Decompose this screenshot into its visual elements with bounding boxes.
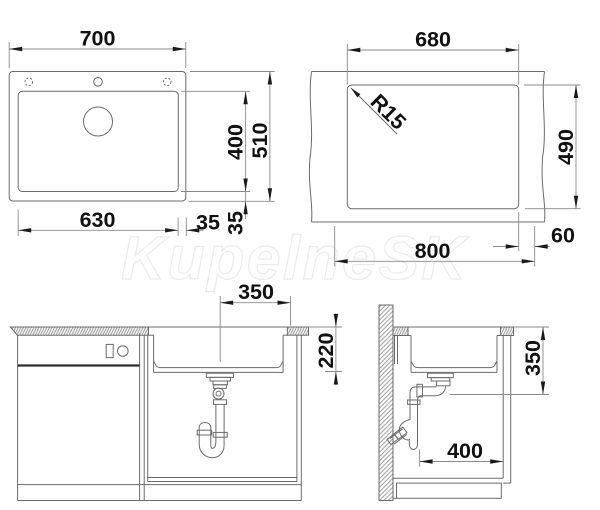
svg-text:R15: R15 <box>366 90 411 135</box>
svg-text:400: 400 <box>224 124 248 160</box>
svg-text:35: 35 <box>224 211 248 235</box>
svg-text:800: 800 <box>415 239 451 263</box>
svg-text:630: 630 <box>80 208 116 232</box>
svg-text:350: 350 <box>238 280 274 304</box>
svg-text:35: 35 <box>196 211 220 235</box>
svg-text:490: 490 <box>554 129 578 165</box>
svg-text:510: 510 <box>248 123 272 159</box>
svg-text:220: 220 <box>314 333 338 369</box>
svg-text:400: 400 <box>447 439 483 463</box>
svg-text:680: 680 <box>415 28 451 52</box>
svg-text:350: 350 <box>521 340 545 376</box>
svg-text:700: 700 <box>80 27 116 51</box>
svg-text:60: 60 <box>551 224 575 248</box>
